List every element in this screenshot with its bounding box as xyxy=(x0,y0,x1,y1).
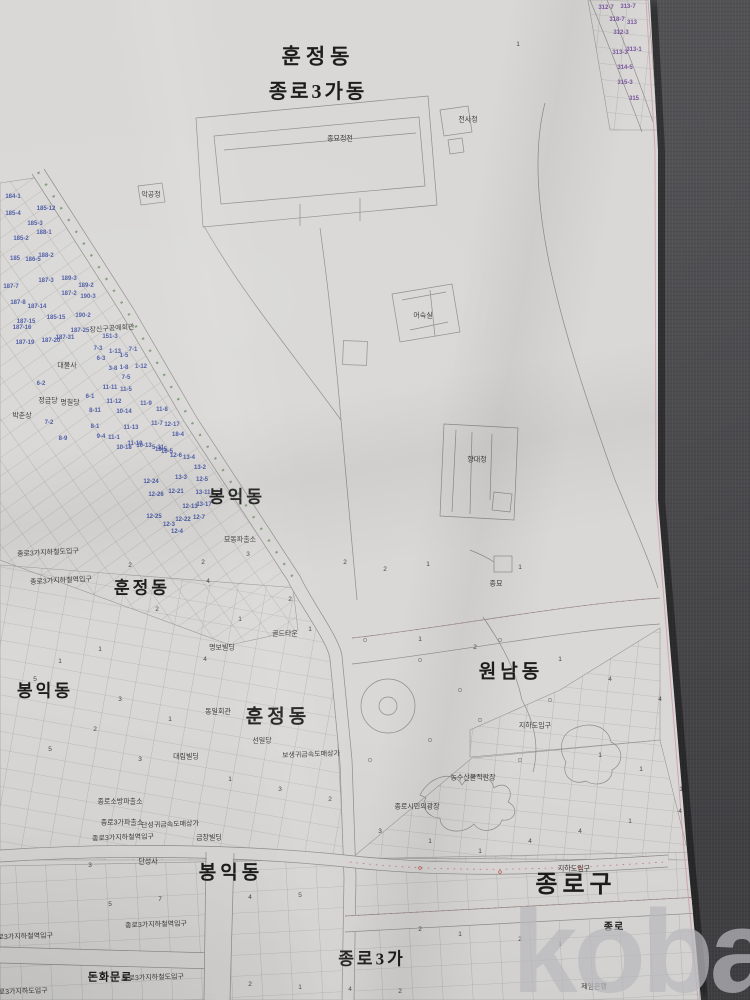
parcel-number: 188-1 xyxy=(36,230,51,236)
place-label: 종로3가지하철역입구 xyxy=(125,920,187,929)
district-label: 훈정동 xyxy=(114,580,170,597)
lot-digit: 3 xyxy=(246,552,250,559)
lot-digit: 1 xyxy=(428,839,432,846)
district-label: 종로3가 xyxy=(338,951,405,968)
parcel-number: 7-3 xyxy=(94,346,103,352)
place-label: 종로3가지하철역입구 xyxy=(30,576,92,586)
lot-digit: 2 xyxy=(93,727,97,734)
district-label: 훈정동 xyxy=(246,708,310,727)
parcel-number: 1-12 xyxy=(135,364,147,370)
place-label: 종로3가지하철역입구 xyxy=(0,932,53,941)
parcel-number: 12-3 xyxy=(163,522,175,528)
parcel-number: 12-4 xyxy=(171,529,183,535)
lot-digit: 2 xyxy=(383,567,387,574)
parcel-number: 187-8 xyxy=(10,300,25,306)
lot-digit: 1 xyxy=(628,819,632,826)
parcel-number: 13-11 xyxy=(195,490,210,496)
parcel-number: 189-2 xyxy=(78,283,93,289)
lot-digit: 4 xyxy=(203,657,207,664)
place-label: 지하도입구 xyxy=(558,866,590,873)
parcel-number: 11-11 xyxy=(103,385,118,391)
parcel-number: 185-2 xyxy=(13,236,28,242)
lot-digit: 1 xyxy=(418,637,422,644)
parcel-number: 315 xyxy=(629,96,639,102)
parcel-number: 313 xyxy=(627,20,637,26)
lot-digit: 1 xyxy=(598,753,602,760)
paper-map: 훈정동종로3가동봉익동훈정동봉익동훈정동원남동종로구봉익동종로3가돈화문로종로 … xyxy=(0,0,750,1000)
parcel-number: 12-7 xyxy=(193,515,205,521)
place-label: 지하도입구 xyxy=(519,723,551,730)
place-label: 대불사 xyxy=(57,363,76,370)
district-label: 봉익동 xyxy=(199,864,263,883)
lot-digit: 4 xyxy=(608,677,612,684)
lot-digit: 2 xyxy=(128,563,132,570)
lot-digit: 1 xyxy=(98,647,102,654)
parcel-number: 186-5 xyxy=(25,257,40,263)
lot-digit: 4 xyxy=(658,697,662,704)
photo-of-paper-map: 훈정동종로3가동봉익동훈정동봉익동훈정동원남동종로구봉익동종로3가돈화문로종로 … xyxy=(0,0,750,1000)
parcel-number: 6-2 xyxy=(37,381,46,387)
parcel-number: 7-5 xyxy=(122,375,131,381)
lot-digit: 2 xyxy=(418,927,422,934)
lot-digit: 7 xyxy=(158,897,162,904)
parcel-number: 12-24 xyxy=(143,479,158,485)
parcel-number: 12-22 xyxy=(175,517,190,523)
place-label: 종묘정전 xyxy=(327,136,353,143)
lot-digit: 5 xyxy=(108,902,112,909)
place-label: 악공청 xyxy=(141,192,160,199)
place-label: 대림빌딩 xyxy=(173,754,199,761)
place-label: 종로3가지하철도입구 xyxy=(17,548,79,558)
parcel-number: 187-25 xyxy=(71,328,90,334)
parcel-number: 6-3 xyxy=(97,356,106,362)
parcel-number: 1-5 xyxy=(120,353,129,359)
parcel-number: 11-12 xyxy=(106,399,121,405)
parcel-number: 187-7 xyxy=(3,284,18,290)
lot-digit: 1 xyxy=(298,985,302,992)
lot-digit: 1 xyxy=(426,562,430,569)
lot-digit: 5 xyxy=(298,893,302,900)
parcel-number: 13-2 xyxy=(194,465,206,471)
parcel-number: 187-20 xyxy=(42,338,61,344)
parcel-number: 12-26 xyxy=(148,492,163,498)
parcel-number: 7-1 xyxy=(129,347,138,353)
lot-digit: 3 xyxy=(278,787,282,794)
lot-digit: 1 xyxy=(639,767,643,774)
parcel-number: 318-7 xyxy=(609,17,624,23)
parcel-number: 189-3 xyxy=(61,276,76,282)
place-label: 어숙실 xyxy=(413,313,432,320)
parcel-number: 11-13 xyxy=(123,425,138,431)
place-label: 종로시민의광장 xyxy=(394,804,439,811)
place-label: 종로3가파출소 xyxy=(101,820,144,827)
lot-digit: 1 xyxy=(516,42,520,49)
place-label: 명보빌딩 xyxy=(209,645,235,652)
parcel-number: 13-4 xyxy=(183,455,195,461)
parcel-number: 3-8 xyxy=(109,366,118,372)
lot-digit: 2 xyxy=(343,560,347,567)
parcel-number: 312-3 xyxy=(613,30,628,36)
place-label: 명칠당 xyxy=(60,400,79,407)
lot-digit: 2 xyxy=(201,560,205,567)
lot-digit: 2 xyxy=(248,982,252,989)
lot-digit: 1 xyxy=(558,657,562,664)
parcel-number: 8-1 xyxy=(91,424,100,430)
parcel-number: 6-1 xyxy=(86,394,95,400)
lot-digit: 3 xyxy=(118,697,122,704)
lot-digit: 4 xyxy=(578,829,582,836)
place-label: 종로3가지하도입구 xyxy=(0,988,48,997)
place-label: 종로소방파출소 xyxy=(97,799,142,806)
place-label: 정금당 xyxy=(38,398,57,405)
district-label: 원남동 xyxy=(479,663,543,682)
lot-digit: 1 xyxy=(458,932,462,939)
parcel-number: 10-14 xyxy=(116,409,131,415)
parcel-number: 190-3 xyxy=(80,294,95,300)
lot-digit: 1 xyxy=(58,659,62,666)
parcel-number: 314-5 xyxy=(617,65,632,71)
parcel-number: 1-8 xyxy=(120,365,129,371)
district-label: 종로3가동 xyxy=(269,82,368,102)
place-label: 선일당 xyxy=(252,738,271,745)
place-label: 전사청 xyxy=(458,117,477,124)
lot-digit: 5 xyxy=(33,677,37,684)
parcel-number: 190-2 xyxy=(75,313,90,319)
parcel-number: 313-1 xyxy=(626,47,641,53)
parcel-number: 185-12 xyxy=(37,206,56,212)
lot-digit: 4 xyxy=(678,809,682,816)
parcel-number: 13-17 xyxy=(196,502,211,508)
parcel-number: 187-2 xyxy=(61,291,76,297)
lot-digit: 1 xyxy=(238,617,242,624)
lot-digit: 1 xyxy=(168,717,172,724)
lot-digit: 1 xyxy=(478,849,482,856)
place-label: 금장빌딩 xyxy=(196,835,222,842)
place-label: 향대청 xyxy=(467,457,486,464)
place-label: 단성사 xyxy=(138,859,157,866)
parcel-number: 7-2 xyxy=(45,420,54,426)
parcel-number: 10-13 xyxy=(136,443,151,449)
parcel-number: 8-11 xyxy=(89,408,101,414)
place-label: 종로3가지하철도입구 xyxy=(122,973,184,982)
lot-digit: 4 xyxy=(348,987,352,994)
parcel-number: 8-9 xyxy=(59,436,68,442)
lot-digit: 1 xyxy=(518,565,522,572)
lot-digit: 3 xyxy=(138,757,142,764)
parcel-number: 151-3 xyxy=(102,334,117,340)
lot-digit: 2 xyxy=(155,607,159,614)
district-label: 봉익동 xyxy=(17,683,73,700)
lot-digit: 4 xyxy=(206,579,210,586)
parcel-number: 11-5 xyxy=(120,387,132,393)
parcel-number: 11-7 xyxy=(151,421,163,427)
place-label: 농수산물직판장 xyxy=(450,775,495,782)
lot-digit: 2 xyxy=(288,597,292,604)
lot-digit: 2 xyxy=(328,797,332,804)
parcel-number: 185-4 xyxy=(5,211,20,217)
parcel-number: 312-7 xyxy=(598,5,613,11)
lot-digit: 2 xyxy=(473,645,477,652)
parcel-number: 185 xyxy=(10,256,20,262)
place-label: 골드타운 xyxy=(272,631,298,638)
parcel-number: 11-9 xyxy=(140,401,152,407)
place-label: 동일회관 xyxy=(205,709,231,716)
parcel-number: 185-3 xyxy=(27,221,42,227)
lot-digit: 2 xyxy=(398,989,402,996)
place-label: 보생귀금속도매상가 xyxy=(282,750,340,759)
kobay-watermark: kobay xyxy=(512,893,750,1000)
lot-digit: 5 xyxy=(48,747,52,754)
parcel-number: 187-14 xyxy=(28,304,47,310)
parcel-number: 12-6 xyxy=(170,453,182,459)
lot-digit: 4 xyxy=(248,895,252,902)
parcel-number: 13-3 xyxy=(175,475,187,481)
district-label: 훈정동 xyxy=(282,47,355,68)
parcel-number: 185-15 xyxy=(47,315,66,321)
parcel-number: 12-25 xyxy=(146,514,161,520)
parcel-number: 11-8 xyxy=(156,407,168,413)
parcel-number: 12-17 xyxy=(164,422,179,428)
parcel-number: 12-5 xyxy=(196,477,208,483)
lot-digit: 4 xyxy=(528,839,532,846)
lot-digit: 1 xyxy=(228,777,232,784)
parcel-number: 184-1 xyxy=(5,194,20,200)
lot-digit: 3 xyxy=(378,829,382,836)
place-label: 장신구공예회관 xyxy=(89,324,134,334)
place-label: 묘동파출소 xyxy=(224,537,256,544)
parcel-number: 187-16 xyxy=(13,325,32,331)
parcel-number: 18-4 xyxy=(172,432,184,438)
place-label: 단성귀금속도매상가 xyxy=(141,820,199,829)
parcel-number: 12-21 xyxy=(168,489,183,495)
place-label: 종묘 xyxy=(490,581,503,588)
parcel-number: 187-19 xyxy=(16,340,35,346)
parcel-number: 187-3 xyxy=(38,278,53,284)
parcel-number: 18-5 xyxy=(155,447,167,453)
lot-digit: 3 xyxy=(88,863,92,870)
lot-digit: 1 xyxy=(308,627,312,634)
parcel-number: 9-4 xyxy=(97,434,106,440)
parcel-number: 313-7 xyxy=(620,4,635,10)
place-label: 종로3가지하철역입구 xyxy=(92,833,154,842)
map-labels-layer: 훈정동종로3가동봉익동훈정동봉익동훈정동원남동종로구봉익동종로3가돈화문로종로 … xyxy=(0,0,750,1000)
district-label: 봉익동 xyxy=(209,489,265,506)
place-label: 박춘상 xyxy=(12,413,31,420)
parcel-number: 315-3 xyxy=(617,80,632,86)
parcel-number: 11-1 xyxy=(108,435,120,441)
